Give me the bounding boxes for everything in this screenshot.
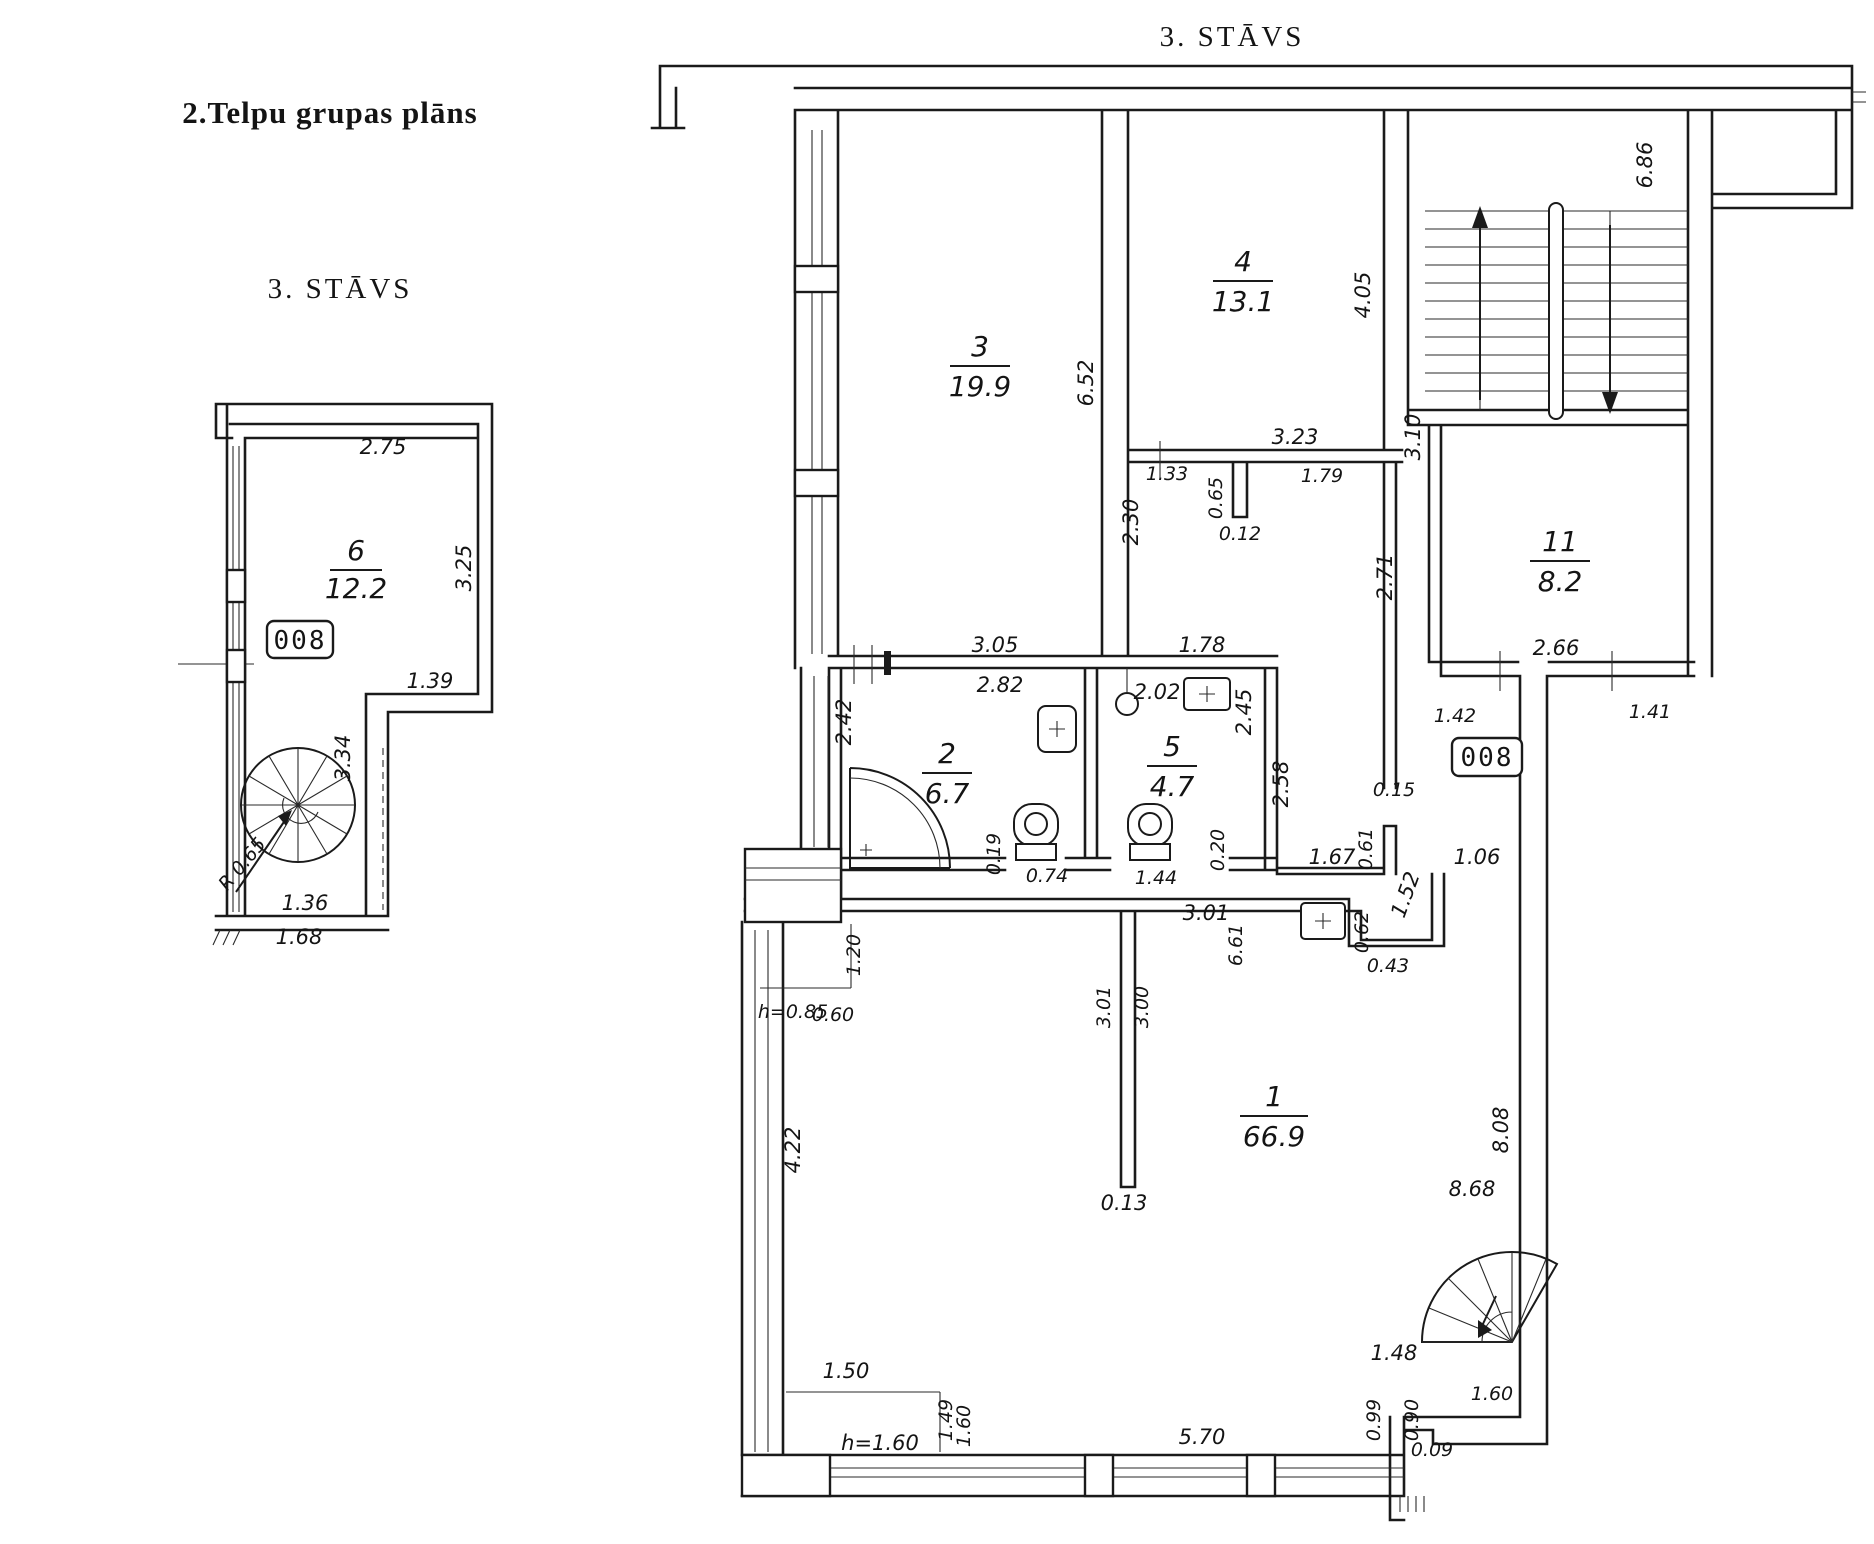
- dim-exit-v1: 0.99: [1363, 1399, 1385, 1441]
- dim-bottom-width: 1.68: [276, 925, 323, 949]
- page-title: 2.Telpu grupas plāns: [182, 95, 477, 130]
- window-mullion: [1085, 1455, 1113, 1496]
- wall-pillar: [795, 470, 838, 496]
- dim-corridor11-height: 2.71: [1373, 554, 1397, 601]
- dim-room2-top: 3.05: [972, 633, 1019, 657]
- room3-number: 3: [971, 330, 989, 363]
- room2-number: 2: [938, 737, 956, 770]
- dim-right-height: 3.25: [452, 545, 476, 592]
- dim-room4-width: 3.23: [1272, 425, 1319, 449]
- dim-wc2-offset: 0.19: [983, 833, 1005, 875]
- dim-partition-right: 3.00: [1131, 986, 1153, 1028]
- dim-wc2-door: 0.74: [1026, 865, 1068, 887]
- stairwell: [1425, 203, 1688, 419]
- main-floor-label: 3. STĀVS: [1160, 21, 1305, 53]
- room4-area: 13.1: [1212, 285, 1274, 318]
- dim-room5-right: 2.58: [1269, 761, 1293, 808]
- dim-lobby-seg2: 1.79: [1301, 465, 1343, 487]
- scanned-floorplan-page: 2.Telpu grupas plāns 3. STĀVS 3. STĀVS 6…: [0, 0, 1874, 1544]
- sink-icon: [1184, 678, 1230, 710]
- dim-room5-height: 2.45: [1232, 689, 1256, 736]
- dim-shaft-height: 8.08: [1489, 1107, 1513, 1154]
- wall-pillar: [227, 570, 245, 602]
- dim-bottom-window: 5.70: [1179, 1425, 1226, 1449]
- window-mullion: [1247, 1455, 1275, 1496]
- toilet-icon: [1128, 804, 1172, 860]
- dim-hall-seg2: 1.06: [1454, 845, 1501, 869]
- dim-room4-height: 4.05: [1351, 272, 1375, 319]
- wall-niche-block: [745, 849, 841, 922]
- dim-exit-offset: 0.09: [1411, 1439, 1453, 1461]
- dim-room11-right-offset: 1.41: [1629, 701, 1671, 723]
- wall-pillar: [227, 650, 245, 682]
- dim-exit-width: 1.60: [1471, 1383, 1513, 1405]
- dim-hall-drop: 1.52: [1386, 869, 1425, 921]
- dim-exit-v2: 0.90: [1401, 1399, 1423, 1441]
- dim-hall-seg1: 1.67: [1309, 845, 1356, 869]
- dim-top-width: 2.75: [360, 435, 407, 459]
- dim-lobby-notch-width: 0.12: [1219, 523, 1261, 545]
- room5-number: 5: [1163, 730, 1181, 763]
- floorplan-canvas: 2.Telpu grupas plāns 3. STĀVS 3. STĀVS 6…: [0, 0, 1874, 1544]
- dim-lobby-notch-depth: 0.65: [1205, 477, 1227, 519]
- dim-stub-length: 0.61: [1355, 828, 1377, 870]
- dim-room5-top: 1.78: [1179, 633, 1226, 657]
- up-arrow-icon: [1472, 206, 1488, 228]
- room6-number: 6: [347, 534, 365, 567]
- dim-room1-right-height: 8.68: [1449, 1177, 1496, 1201]
- stair-handrail: [1549, 203, 1563, 419]
- dim-bay-height: h=1.60: [841, 1431, 919, 1455]
- dim-room1-vert: 6.61: [1225, 924, 1247, 966]
- room2-area: 6.7: [925, 777, 970, 810]
- dim-niche-height: 1.20: [843, 934, 865, 976]
- stair-arrow: [1482, 1296, 1496, 1326]
- dim-stair-radius: R 0.65: [214, 833, 270, 894]
- dim-stairwell-width: 3.10: [1401, 414, 1425, 461]
- dim-stair-zone-width: 1.36: [282, 891, 329, 915]
- dim-wc5-door: 1.44: [1135, 867, 1177, 889]
- room3-area: 19.9: [949, 370, 1011, 403]
- dim-partition-left: 3.01: [1093, 986, 1115, 1028]
- dim-room5-inner: 2.02: [1134, 680, 1181, 704]
- dim-bay-width: 1.50: [823, 1359, 870, 1383]
- dim-niche-width: 1.39: [407, 669, 454, 693]
- room6-area: 12.2: [325, 572, 387, 605]
- door-mark: [884, 651, 891, 675]
- sink-icon: [1301, 903, 1345, 939]
- dim-room11-width: 2.66: [1533, 636, 1580, 660]
- wall-pillar: [795, 266, 838, 292]
- dim-room3-height: 6.52: [1074, 360, 1098, 407]
- room4-number: 4: [1234, 245, 1252, 278]
- room1-number: 1: [1265, 1080, 1283, 1113]
- room11-number: 11: [1542, 525, 1578, 558]
- dim-room1-top: 3.01: [1183, 901, 1230, 925]
- dim-room11-left-offset: 1.42: [1434, 705, 1476, 727]
- dim-jog-depth: 0.62: [1351, 911, 1373, 953]
- dim-jog-width: 0.43: [1367, 955, 1409, 977]
- stair-arrowhead: [1478, 1320, 1492, 1338]
- dim-room2-height: 2.42: [832, 699, 856, 746]
- dim-niche-sill2: 0.60: [812, 1004, 854, 1026]
- dim-stairwell-height: 6.86: [1633, 142, 1657, 189]
- dim-stub-width: 0.15: [1373, 779, 1415, 801]
- left-floor-label: 3. STĀVS: [268, 273, 413, 305]
- dim-stair-zone-height: 3.34: [331, 735, 355, 782]
- dim-room1-left-height: 4.22: [781, 1127, 805, 1174]
- left-floor-plan: 6 12.2 008 2.75 3.25 1.39 3.34 1.36 1.68…: [178, 404, 492, 949]
- unit-code-left: 008: [274, 626, 327, 656]
- sink-icon: [1038, 706, 1076, 752]
- dim-partition-thickness: 0.13: [1101, 1191, 1148, 1215]
- room11-area: 8.2: [1538, 565, 1583, 598]
- spiral-stair-icon: [1422, 1252, 1557, 1342]
- dim-lobby-height: 2.30: [1119, 499, 1143, 546]
- room5-area: 4.7: [1150, 770, 1195, 803]
- dim-wc5-offset: 0.20: [1207, 829, 1229, 871]
- room1-area: 66.9: [1243, 1120, 1305, 1153]
- dim-bay-v2: 1.60: [953, 1405, 975, 1447]
- wall-corner-block: [742, 1455, 830, 1496]
- main-floor-plan: 3 19.9 4 13.1 11 8.2 2 6.7 5 4.7 1 66.9 …: [652, 66, 1866, 1520]
- dim-exit-gap: 1.48: [1371, 1341, 1418, 1365]
- dim-room2-width: 2.82: [977, 673, 1024, 697]
- toilet-icon: [1014, 804, 1058, 860]
- unit-code-main: 008: [1461, 743, 1514, 773]
- dim-lobby-seg1: 1.33: [1146, 463, 1188, 485]
